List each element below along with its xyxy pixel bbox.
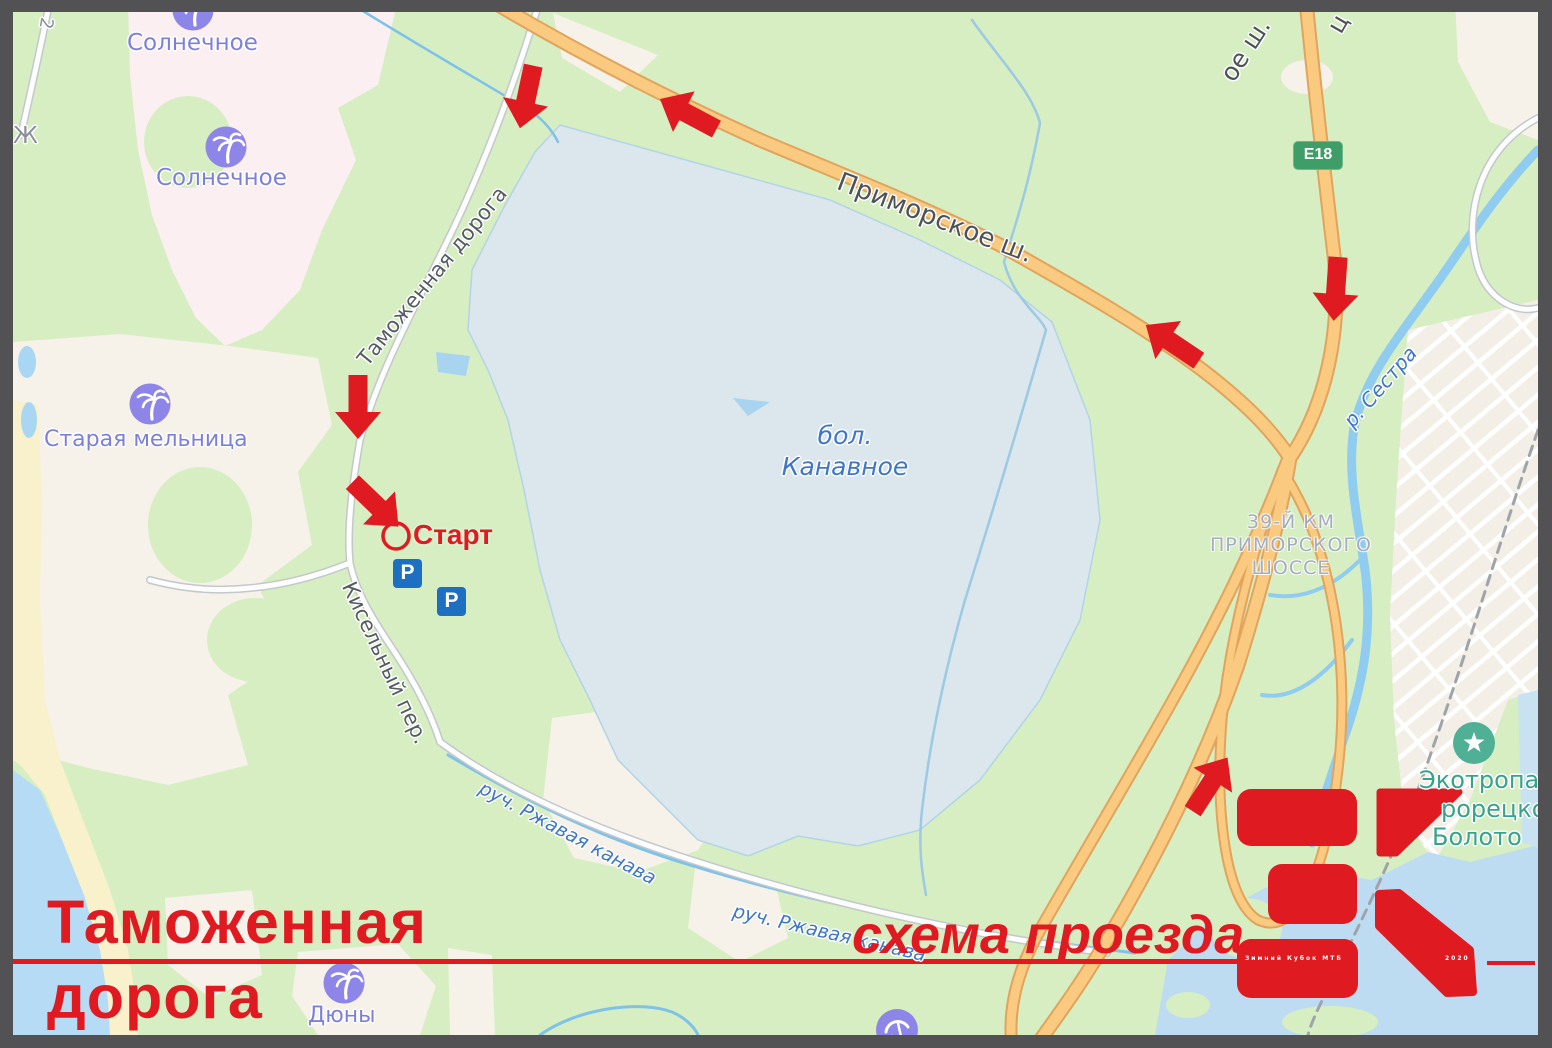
logo-subtitle: Зимний Кубок МТБ bbox=[1245, 955, 1343, 962]
route-map: Солнечное Солнечное Старая мельница Дюны… bbox=[0, 0, 1552, 1048]
label-ekotropa-line1: Экотропа bbox=[1419, 768, 1539, 793]
logo-year: 2020 bbox=[1445, 955, 1470, 962]
label-bol-kanavnoe: бол. Канавное bbox=[770, 420, 920, 482]
resort-icon-dyuny bbox=[324, 963, 365, 1004]
divider-line-right bbox=[1487, 961, 1535, 965]
label-km39: 39-Й КМ ПРИМОРСКОГО ШОССЕ bbox=[1196, 511, 1386, 580]
label-staraya-melnitsa: Старая мельница bbox=[44, 428, 248, 451]
poster-title-line1: Таможенная bbox=[47, 892, 427, 953]
label-bol-kanavnoe-line1: бол. bbox=[770, 420, 920, 451]
label-km39-line2: ПРИМОРСКОГО bbox=[1196, 534, 1386, 557]
label-dyuny: Дюны bbox=[308, 1004, 375, 1027]
label-solnechnoe-1: Солнечное bbox=[127, 31, 258, 55]
parking-icon: P bbox=[437, 587, 466, 616]
resort-icon-staraya-melnitsa bbox=[130, 384, 171, 425]
resort-icon-solnechnoe-2 bbox=[206, 127, 247, 168]
label-ekotropa-line2: рорецко bbox=[1441, 797, 1546, 822]
label-bol-kanavnoe-line2: Канавное bbox=[770, 451, 920, 482]
label-km39-line3: ШОССЕ bbox=[1196, 557, 1386, 580]
poster-title-line2: дорога bbox=[47, 967, 263, 1028]
parking-icon: P bbox=[393, 559, 422, 588]
label-partial-zh: Ж bbox=[13, 124, 38, 148]
label-solnechnoe-2: Солнечное bbox=[156, 166, 287, 190]
label-ekotropa-line3: Болото bbox=[1432, 825, 1522, 850]
start-label: Старт bbox=[413, 519, 493, 551]
eco-trail-star-icon bbox=[1453, 722, 1495, 764]
poster-caption: схема проезда bbox=[852, 908, 1244, 962]
label-km39-line1: 39-Й КМ bbox=[1196, 511, 1386, 534]
road-shield-e18: E18 bbox=[1293, 141, 1343, 170]
